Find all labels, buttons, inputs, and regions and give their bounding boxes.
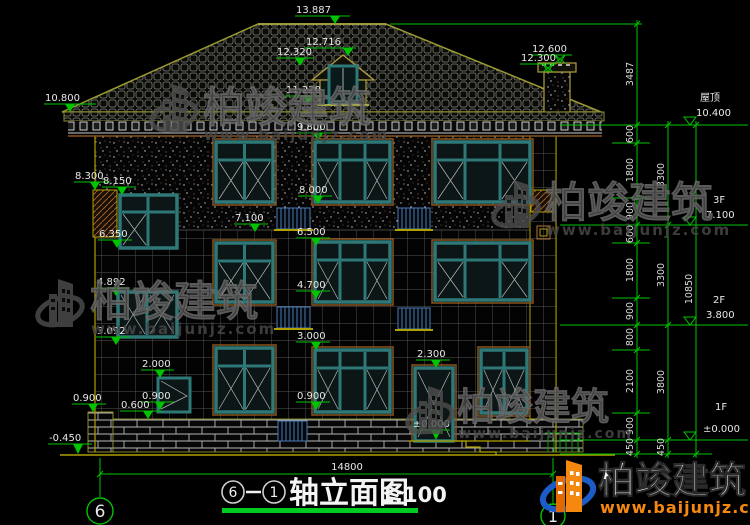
svg-text:10.400: 10.400 bbox=[696, 108, 731, 119]
svg-text:柏竣建筑: 柏竣建筑 bbox=[545, 178, 713, 227]
svg-text:10850: 10850 bbox=[684, 274, 695, 304]
svg-text:12.320: 12.320 bbox=[277, 47, 312, 58]
drawing-title-block: 6 1 轴立面图 1:100 bbox=[222, 476, 447, 513]
grille-1f bbox=[278, 421, 307, 441]
right-level-markers: 屋顶 10.400 3F 7.100 2F 3.800 1F ±0.000 bbox=[684, 92, 740, 440]
svg-text:1800: 1800 bbox=[625, 258, 636, 282]
axis-bubble-left: 6 bbox=[87, 498, 113, 524]
svg-text:7.100: 7.100 bbox=[235, 213, 264, 224]
elevation-drawing: 13.887 12.716 12.320 11.220 12.600 12.30… bbox=[0, 0, 750, 525]
svg-text:3800: 3800 bbox=[656, 370, 667, 394]
svg-text:2F: 2F bbox=[713, 295, 725, 306]
svg-text:800: 800 bbox=[625, 328, 636, 346]
svg-text:4.700: 4.700 bbox=[297, 280, 326, 291]
brand-logo-icon bbox=[34, 279, 85, 330]
svg-text:8.000: 8.000 bbox=[299, 185, 328, 196]
watermark-left: 柏竣建筑 www.baijunjz.com bbox=[34, 277, 276, 338]
svg-text:3.800: 3.800 bbox=[706, 310, 735, 321]
watermark-bottom-middle: 柏竣建筑 www.baijunjz.com bbox=[404, 385, 633, 442]
railing-2f-left bbox=[274, 307, 313, 329]
svg-text:12.300: 12.300 bbox=[521, 53, 556, 64]
svg-text:www.baijunjz.com: www.baijunjz.com bbox=[546, 221, 731, 239]
railing-3f-right bbox=[395, 208, 433, 230]
svg-text:www.baijunjz.com: www.baijunjz.com bbox=[91, 320, 276, 338]
svg-text:www.baijunjz.com: www.baijunjz.com bbox=[458, 426, 633, 442]
svg-text:8.300: 8.300 bbox=[75, 171, 104, 182]
brand-logo-color: 柏竣建筑 www.baijunjz.com bbox=[539, 459, 750, 517]
svg-text:13.887: 13.887 bbox=[296, 5, 331, 16]
svg-text:1: 1 bbox=[270, 485, 279, 501]
svg-text:0.900: 0.900 bbox=[297, 391, 326, 402]
watermark-top: 柏竣建筑 www.baijunjz.com bbox=[148, 83, 389, 144]
svg-text:-0.450: -0.450 bbox=[49, 433, 81, 444]
svg-text:6: 6 bbox=[229, 485, 238, 501]
svg-text:2.000: 2.000 bbox=[142, 359, 171, 370]
svg-text:柏竣建筑: 柏竣建筑 bbox=[598, 459, 746, 502]
chimney bbox=[538, 63, 576, 112]
svg-text:0.900: 0.900 bbox=[73, 393, 102, 404]
svg-text:10.800: 10.800 bbox=[45, 93, 80, 104]
svg-text:6: 6 bbox=[95, 502, 106, 522]
railing-2f-right bbox=[395, 308, 433, 330]
svg-text:柏竣建筑: 柏竣建筑 bbox=[457, 385, 609, 429]
window-1f-left bbox=[213, 345, 276, 415]
svg-text:1F: 1F bbox=[715, 402, 727, 413]
dimension-chain-inner: 3487 600 1800 900 600 1800 900 800 2100 … bbox=[625, 62, 636, 456]
dimension-chain-outer: 10850 bbox=[684, 274, 695, 304]
cad-elevation-screenshot: 13.887 12.716 12.320 11.220 12.600 12.30… bbox=[0, 0, 750, 525]
level-1f: 1F ±0.000 bbox=[684, 402, 740, 440]
svg-text:6.500: 6.500 bbox=[297, 227, 326, 238]
svg-text:3.000: 3.000 bbox=[297, 331, 326, 342]
overall-width-dim: 14800 bbox=[331, 462, 363, 473]
marker-peak: 13.887 bbox=[295, 5, 350, 24]
svg-text:0.600: 0.600 bbox=[121, 400, 150, 411]
level-roof: 屋顶 10.400 bbox=[684, 92, 731, 125]
svg-text:600: 600 bbox=[625, 125, 636, 143]
window-2f-center bbox=[312, 239, 393, 305]
left-pier-plinth bbox=[88, 412, 113, 452]
drawing-scale: 1:100 bbox=[380, 483, 447, 507]
svg-text:柏竣建筑: 柏竣建筑 bbox=[90, 277, 258, 326]
svg-text:450: 450 bbox=[656, 438, 667, 456]
marker-ground: -0.450 bbox=[48, 433, 92, 454]
svg-text:2100: 2100 bbox=[625, 369, 636, 393]
svg-text:www.baijunjz.com: www.baijunjz.com bbox=[600, 498, 750, 517]
window-2f-right bbox=[432, 240, 533, 303]
svg-text:3300: 3300 bbox=[656, 263, 667, 287]
svg-text:900: 900 bbox=[625, 302, 636, 320]
svg-text:8.150: 8.150 bbox=[103, 176, 132, 187]
title-underline bbox=[222, 508, 418, 513]
svg-text:±0.000: ±0.000 bbox=[703, 424, 740, 435]
window-3f-left bbox=[213, 139, 276, 205]
svg-text:www.baijunjz.com: www.baijunjz.com bbox=[204, 126, 389, 144]
svg-text:2.300: 2.300 bbox=[417, 349, 446, 360]
svg-text:屋顶: 屋顶 bbox=[700, 92, 720, 104]
window-1f-center bbox=[312, 347, 393, 415]
svg-text:3F: 3F bbox=[713, 195, 725, 206]
svg-text:柏竣建筑: 柏竣建筑 bbox=[203, 83, 371, 132]
brand-logo-color-icon bbox=[539, 460, 597, 515]
svg-text:6.350: 6.350 bbox=[99, 229, 128, 240]
svg-text:3487: 3487 bbox=[625, 62, 636, 86]
